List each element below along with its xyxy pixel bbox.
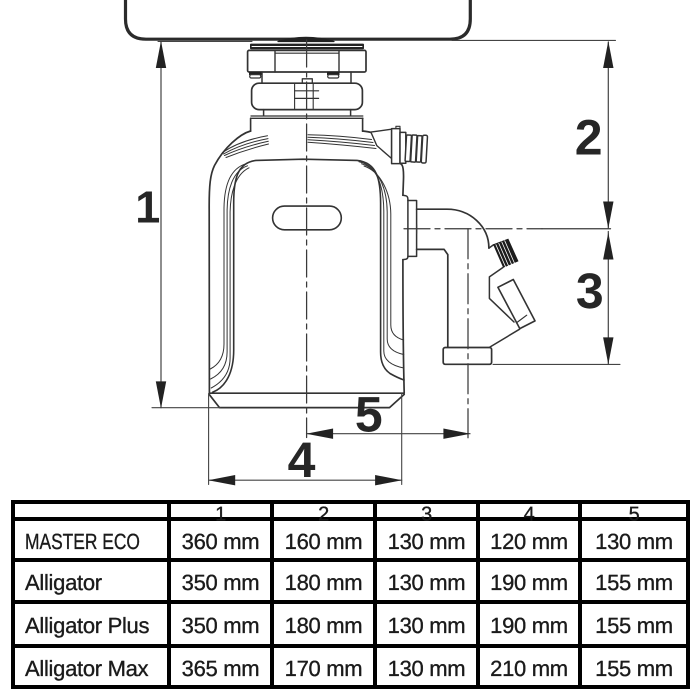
svg-text:4: 4 [288,432,316,488]
svg-text:1: 1 [135,182,160,233]
svg-text:3: 3 [576,263,604,319]
svg-text:5: 5 [355,386,383,442]
svg-text:2: 2 [575,109,603,165]
